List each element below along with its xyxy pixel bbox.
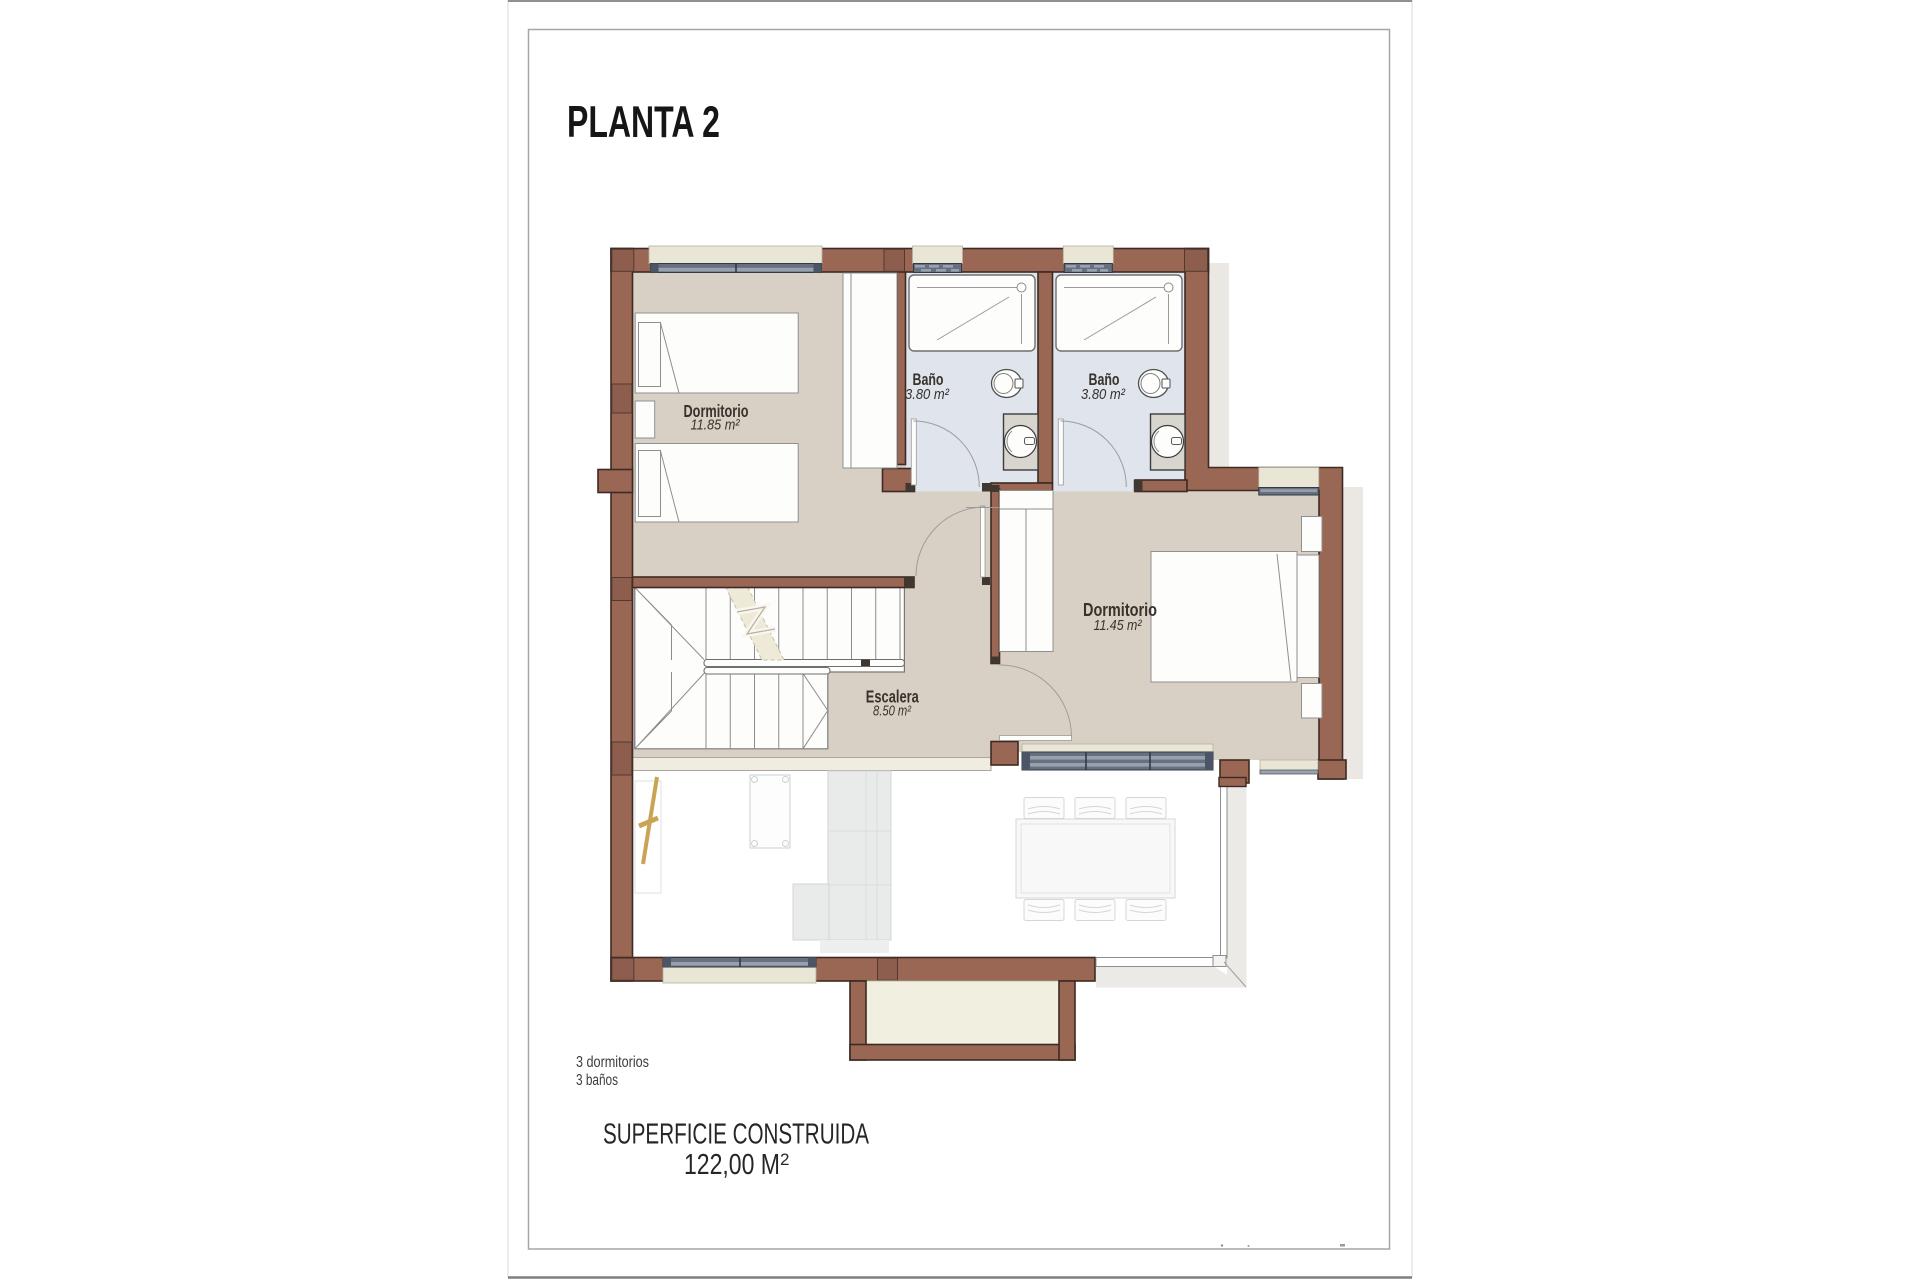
svg-text:SUPERFICIE CONSTRUIDA: SUPERFICIE CONSTRUIDA [603,1119,869,1151]
svg-text:122,00 M2: 122,00 M2 [684,1149,789,1181]
svg-text:3 baños: 3 baños [576,1072,618,1089]
svg-text:11.85 m²: 11.85 m² [691,417,741,434]
svg-text:11.45 m²: 11.45 m² [1094,617,1143,634]
svg-text:3.80 m²: 3.80 m² [905,386,950,403]
svg-text:8.50 m²: 8.50 m² [873,704,912,720]
svg-text:3.80 m²: 3.80 m² [1081,386,1126,403]
svg-text:PLANTA 2: PLANTA 2 [567,98,720,147]
svg-text:3 dormitorios: 3 dormitorios [576,1054,649,1071]
